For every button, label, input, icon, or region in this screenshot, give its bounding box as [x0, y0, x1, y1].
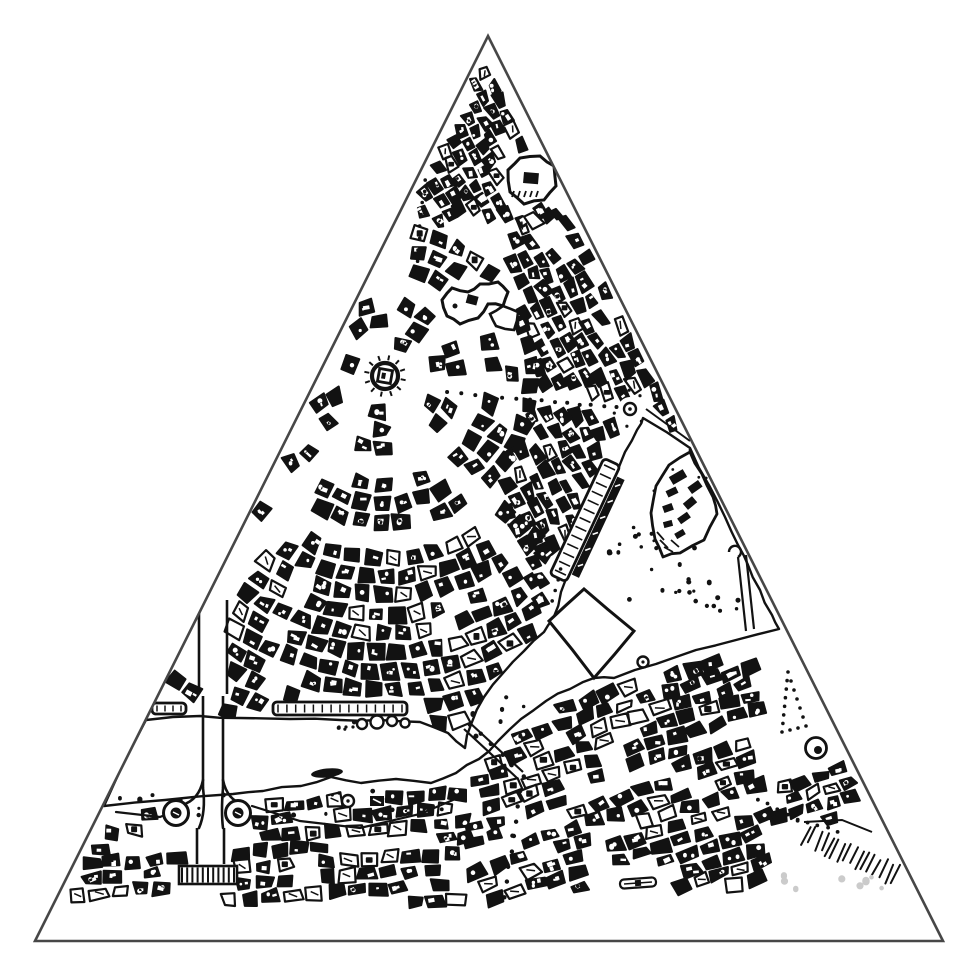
hilltop-inner-block [523, 172, 539, 184]
triangular-city-map [0, 0, 978, 978]
bottom-boat [620, 877, 657, 888]
moored-boat-circle [387, 716, 397, 726]
bridge-roundabout-dot [641, 660, 644, 663]
avenue-ramp [222, 788, 223, 828]
ne-plaza-dot [628, 407, 632, 411]
moored-boat-circle [357, 719, 367, 729]
beach-ring-dot [346, 799, 349, 802]
park-pond-islet [814, 746, 822, 754]
compound-inner-dot [453, 304, 458, 309]
boat-dots [337, 725, 354, 728]
bottom-boat-cabin [635, 880, 641, 886]
moored-boat-circle [401, 719, 410, 728]
moored-boat-circle [371, 716, 384, 729]
plaza-monument [377, 368, 392, 383]
artwork-frame [0, 0, 978, 978]
